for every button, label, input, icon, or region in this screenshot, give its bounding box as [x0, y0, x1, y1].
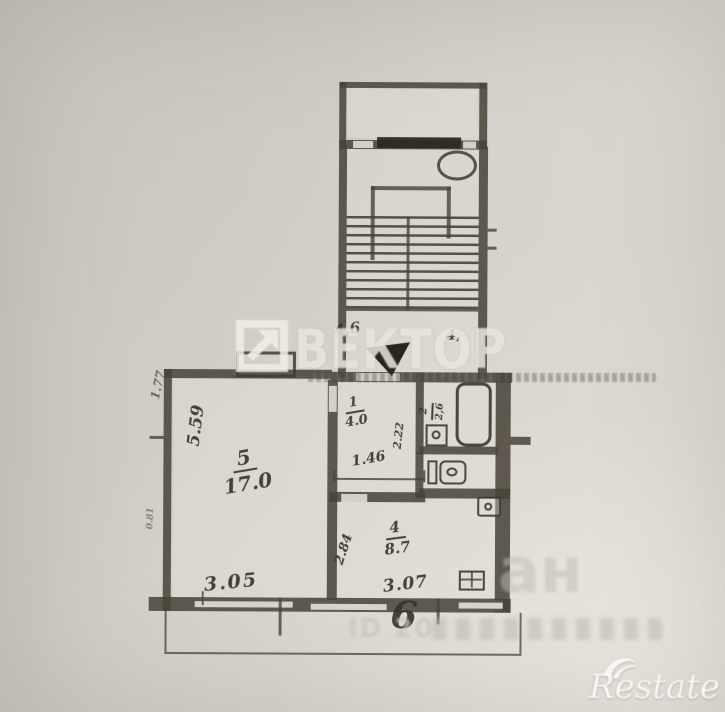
dim-tick [423, 470, 425, 482]
wall [163, 369, 172, 611]
washbasin-icon [426, 424, 448, 446]
room-label-bath: 2 2,6 [419, 402, 446, 420]
wall [419, 446, 497, 454]
stove-icon [459, 571, 485, 591]
vent-circle-icon [437, 150, 477, 180]
wall-tick [488, 229, 497, 232]
washbasin-bowl [432, 430, 441, 439]
vektor-watermark: ВЕКТОР [294, 318, 507, 381]
room-number: 2 [419, 402, 434, 420]
listing-id-watermark: ID 20 [348, 614, 435, 644]
wall-stub [511, 437, 531, 445]
dim-tick [333, 470, 335, 482]
room-area: 8.7 [383, 537, 411, 557]
toilet-icon [427, 458, 471, 486]
dim-hall-depth: 2.22 [391, 420, 405, 451]
vektor-tagline-blur [308, 373, 656, 382]
dim-tick [202, 591, 204, 605]
toilet-bowl [439, 460, 466, 484]
bathtub-icon [456, 382, 492, 446]
vektor-logo-icon [236, 320, 288, 372]
restate-logo-text: Restate [588, 667, 720, 707]
dim-living-width: 3.05 [203, 571, 259, 595]
door-lintel [377, 137, 461, 148]
room-label-living: 5 17.0 [218, 444, 274, 498]
wall [339, 82, 346, 146]
wall [479, 83, 487, 147]
room-area: 2,6 [433, 403, 446, 421]
stair-railing [371, 186, 451, 190]
listing-id-digits-blur [432, 618, 662, 640]
door-gap [341, 494, 367, 502]
floorplan-photo: 5 17.0 1 4.0 2 2,6 4 8.7 6 5.59 3.05 1.4… [0, 0, 725, 712]
wall-tick [150, 436, 164, 439]
stove-grid-line [461, 579, 482, 581]
door-gap [463, 142, 476, 149]
balcony-top-floor [347, 88, 477, 139]
door-gap [353, 141, 373, 148]
toilet-tank [427, 460, 437, 484]
door-gap [329, 386, 337, 412]
dim-edge-bottom-left: 0.81 [146, 493, 157, 543]
wall-tick [488, 247, 497, 250]
wall [339, 82, 486, 89]
window [459, 601, 503, 611]
portal-watermark-fragment: ан [498, 534, 583, 607]
stairs [346, 216, 478, 311]
sink-drain [484, 503, 492, 511]
room-area: 4.0 [344, 411, 369, 430]
room-label-kitchen: 4 8.7 [381, 519, 412, 558]
restate-logo: Restate [585, 652, 725, 710]
balcony-door-window [311, 602, 387, 612]
stair-divider [406, 216, 409, 310]
kitchen-sink-icon [477, 497, 501, 517]
toilet-bowl-inner [446, 467, 457, 476]
